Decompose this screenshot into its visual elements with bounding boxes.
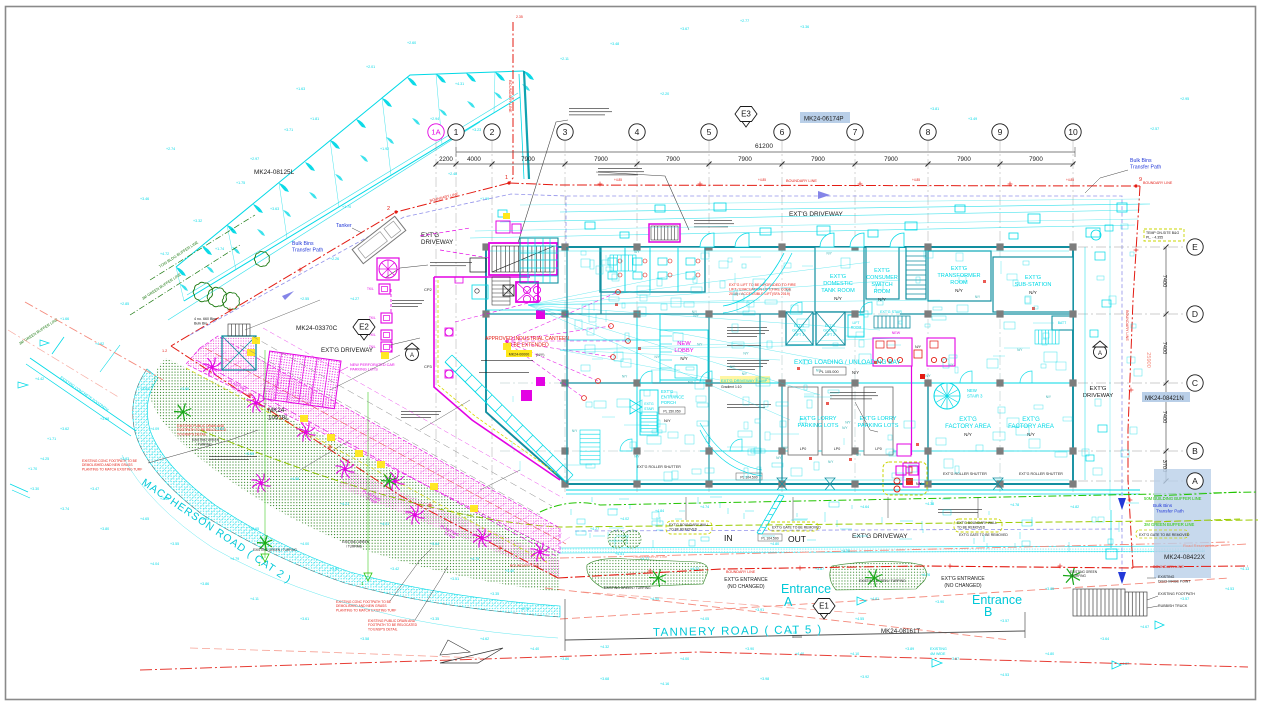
svg-text:+4.74: +4.74 <box>700 505 709 509</box>
svg-text:EXT'G GATE TO BE REMOVED: EXT'G GATE TO BE REMOVED <box>1139 533 1190 537</box>
svg-text:TK/L: TK/L <box>369 316 376 320</box>
svg-text:PLANTING TO MATCH EXISTING TUR: PLANTING TO MATCH EXISTING TURF <box>82 467 142 471</box>
svg-text:NEW: NEW <box>677 341 691 347</box>
svg-text:EXT'G LOADING / UNLOADING BAY: EXT'G LOADING / UNLOADING BAY <box>794 359 901 366</box>
svg-text:N/Y: N/Y <box>915 345 922 349</box>
svg-text:N/Y: N/Y <box>842 426 848 430</box>
svg-text:+3.35: +3.35 <box>430 617 439 621</box>
svg-text:+2.94: +2.94 <box>430 117 439 121</box>
svg-text:2200: 2200 <box>439 156 453 163</box>
svg-text:+3.90: +3.90 <box>935 600 944 604</box>
svg-text:N/Y: N/Y <box>680 356 687 361</box>
svg-text:+4.32: +4.32 <box>600 645 609 649</box>
svg-text:N/Y: N/Y <box>1029 290 1037 295</box>
svg-text:+1.63: +1.63 <box>296 87 305 91</box>
svg-text:LIFT 1: LIFT 1 <box>794 333 804 337</box>
svg-text:+3.92: +3.92 <box>860 675 869 679</box>
svg-text:CONSUMER: CONSUMER <box>866 275 898 281</box>
svg-text:N/Y: N/Y <box>697 343 703 347</box>
svg-text:Road Reserve Line: Road Reserve Line <box>633 554 668 559</box>
svg-text:+4.42: +4.42 <box>35 377 44 381</box>
svg-text:N/Y: N/Y <box>845 420 851 424</box>
svg-text:BATT: BATT <box>1058 321 1066 325</box>
svg-text:+3.40: +3.40 <box>505 569 514 573</box>
svg-text:+1.66: +1.66 <box>60 317 69 321</box>
svg-text:Bulk Bin: Bulk Bin <box>194 322 207 326</box>
svg-text:+3.74: +3.74 <box>60 507 69 511</box>
svg-text:+3.36: +3.36 <box>800 25 809 29</box>
svg-text:+3.48: +3.48 <box>610 42 619 46</box>
svg-text:+4.75: +4.75 <box>470 557 479 561</box>
svg-text:N/Y: N/Y <box>622 375 628 379</box>
svg-text:PARKING LOTS: PARKING LOTS <box>858 423 899 429</box>
svg-text:+4.81: +4.81 <box>870 597 879 601</box>
svg-text:Bulk Bins: Bulk Bins <box>1153 503 1173 508</box>
svg-text:EXT'G: EXT'G <box>1025 275 1041 281</box>
svg-text:/ TURFING: / TURFING <box>1070 574 1086 578</box>
svg-text:+4.13: +4.13 <box>1240 567 1249 571</box>
svg-text:N/Y: N/Y <box>1027 432 1035 437</box>
svg-text:7400: 7400 <box>1161 411 1167 423</box>
svg-text:+4.58: +4.58 <box>290 477 299 481</box>
svg-text:SUB-STATION: SUB-STATION <box>1015 282 1052 288</box>
svg-text:3: 3 <box>563 127 568 137</box>
svg-text:4 no. 660 Bins: 4 no. 660 Bins <box>194 317 217 321</box>
svg-text:10518L: 10518L <box>268 415 289 422</box>
svg-text:EXT'G STAIR: EXT'G STAIR <box>880 310 902 314</box>
svg-text:PL 150.050: PL 150.050 <box>663 410 680 414</box>
svg-text:MK24-08422X: MK24-08422X <box>1164 554 1206 561</box>
svg-text:+2.55: +2.55 <box>300 297 309 301</box>
svg-text:IN: IN <box>724 533 733 543</box>
svg-text:+2.97: +2.97 <box>250 157 259 161</box>
svg-text:EXT'G DRIVEWAY: EXT'G DRIVEWAY <box>789 211 844 218</box>
svg-text:+3.51: +3.51 <box>450 577 459 581</box>
svg-text:LIFT 2: LIFT 2 <box>825 333 835 337</box>
svg-text:+4.51: +4.51 <box>615 552 624 556</box>
svg-text:E: E <box>1192 242 1198 252</box>
svg-text:7900: 7900 <box>594 156 608 163</box>
svg-text:2.35: 2.35 <box>516 15 523 19</box>
svg-text:EXT'G BOUNDARY WALL: EXT'G BOUNDARY WALL <box>957 521 997 525</box>
svg-text:4M WIDE: 4M WIDE <box>930 652 946 656</box>
svg-text:4000: 4000 <box>467 156 481 163</box>
svg-text:+4.10: +4.10 <box>850 652 859 656</box>
svg-text:LP0: LP0 <box>800 447 806 451</box>
svg-text:+3.98: +3.98 <box>760 677 769 681</box>
svg-text:+4.53: +4.53 <box>1225 587 1234 591</box>
svg-text:+2.95: +2.95 <box>1180 97 1189 101</box>
svg-text:TO BE REMOVED: TO BE REMOVED <box>669 528 698 532</box>
svg-text:+3.61: +3.61 <box>300 617 309 621</box>
svg-text:7900: 7900 <box>738 156 752 163</box>
svg-text:7900: 7900 <box>884 156 898 163</box>
svg-text:+2.01: +2.01 <box>366 65 375 69</box>
svg-text:N/Y: N/Y <box>572 429 578 433</box>
svg-text:+4.21: +4.21 <box>340 502 349 506</box>
svg-text:+3.87: +3.87 <box>815 567 824 571</box>
svg-text:B: B <box>984 605 992 619</box>
svg-text:CP3: CP3 <box>424 364 433 369</box>
svg-text:N/Y: N/Y <box>955 288 963 293</box>
svg-text:N/Y: N/Y <box>964 432 972 437</box>
svg-text:EXT'G ENTRANCE: EXT'G ENTRANCE <box>941 576 985 582</box>
svg-text:+3.58: +3.58 <box>360 637 369 641</box>
svg-text:+4.84: +4.84 <box>655 509 664 513</box>
svg-text:N/Y: N/Y <box>827 251 833 255</box>
svg-text:PL. - 4.355: PL. - 4.355 <box>1146 236 1163 240</box>
svg-text:EXT'G: EXT'G <box>1022 417 1040 423</box>
svg-text:MK24-03370C: MK24-03370C <box>296 325 338 332</box>
svg-text:TK/L: TK/L <box>367 287 374 291</box>
svg-text:EXT'G: EXT'G <box>661 389 673 394</box>
svg-text:+3.89: +3.89 <box>905 647 914 651</box>
svg-text:+3.32: +3.32 <box>193 219 202 223</box>
svg-text:4: 4 <box>635 127 640 137</box>
svg-text:+4.82: +4.82 <box>1070 505 1079 509</box>
svg-text:Bulk Bins: Bulk Bins <box>292 241 314 247</box>
svg-text:EXTG: EXTG <box>644 402 654 406</box>
svg-text:Entrance: Entrance <box>972 593 1022 607</box>
svg-text:+3.53: +3.53 <box>200 517 209 521</box>
svg-text:7: 7 <box>853 127 858 137</box>
svg-text:LP0: LP0 <box>834 447 840 451</box>
svg-text:+4.85: +4.85 <box>758 178 766 182</box>
svg-text:+3.55: +3.55 <box>170 542 179 546</box>
svg-text:NEW: NEW <box>967 388 977 393</box>
svg-text:Entrance: Entrance <box>781 582 831 596</box>
svg-text:9: 9 <box>1139 177 1142 183</box>
svg-text:+3.42: +3.42 <box>390 567 399 571</box>
svg-text:+4.02: +4.02 <box>788 631 797 635</box>
svg-text:+4.04: +4.04 <box>150 562 159 566</box>
svg-text:ENTRANCE: ENTRANCE <box>661 395 684 400</box>
svg-text:2: 2 <box>490 127 495 137</box>
svg-text:7400: 7400 <box>1161 275 1167 287</box>
svg-text:+1.70: +1.70 <box>342 205 351 209</box>
svg-text:+3.64: +3.64 <box>1100 637 1109 641</box>
svg-text:E1: E1 <box>819 602 829 611</box>
svg-text:+3.60: +3.60 <box>180 387 189 391</box>
svg-text:EXT'G ROLLER SHUTTER: EXT'G ROLLER SHUTTER <box>943 472 987 476</box>
svg-text:+3.83: +3.83 <box>120 457 129 461</box>
svg-text:+3.71: +3.71 <box>284 128 293 132</box>
svg-text:EXISTING FOOTPATH: EXISTING FOOTPATH <box>1158 592 1195 596</box>
svg-text:N/Y: N/Y <box>634 454 640 458</box>
svg-text:N/Y: N/Y <box>783 446 789 450</box>
svg-text:2: 2 <box>387 206 390 212</box>
svg-text:+4.72: +4.72 <box>160 252 169 256</box>
svg-text:EXT'G ROLLER SHUTTER: EXT'G ROLLER SHUTTER <box>1019 472 1063 476</box>
svg-text:6: 6 <box>780 127 785 137</box>
svg-text:10: 10 <box>1068 127 1078 137</box>
svg-text:+2.85: +2.85 <box>120 302 129 306</box>
svg-text:+4.27: +4.27 <box>350 297 359 301</box>
svg-text:+3.57: +3.57 <box>1180 597 1189 601</box>
svg-text:+2.20: +2.20 <box>660 92 669 96</box>
svg-text:+3.67: +3.67 <box>680 27 689 31</box>
svg-text:STAIR 3: STAIR 3 <box>967 394 983 399</box>
svg-text:+3.46: +3.46 <box>160 497 169 501</box>
svg-text:+4.78: +4.78 <box>1010 503 1019 507</box>
svg-text:RUBBISH TRUCK: RUBBISH TRUCK <box>1158 604 1188 608</box>
svg-text:BOUNDARY LINE: BOUNDARY LINE <box>786 179 817 183</box>
svg-text:+2.77: +2.77 <box>740 19 749 23</box>
svg-text:Tanker: Tanker <box>336 223 352 229</box>
svg-text:A: A <box>410 353 414 359</box>
svg-text:+4.22: +4.22 <box>690 567 699 571</box>
svg-text:EXT'G: EXT'G <box>1090 386 1107 392</box>
svg-text:EXT'G ROLLER SHUTTER: EXT'G ROLLER SHUTTER <box>637 465 681 469</box>
svg-text:+4.62: +4.62 <box>480 637 489 641</box>
svg-text:+3.63: +3.63 <box>215 427 224 431</box>
svg-text:+4.80: +4.80 <box>1045 652 1054 656</box>
svg-text:+4.40: +4.40 <box>795 652 804 656</box>
svg-text:(N/Y): (N/Y) <box>536 353 544 357</box>
svg-text:ROOM: ROOM <box>851 326 862 330</box>
svg-text:TO ENSP'S DETAIL: TO ENSP'S DETAIL <box>177 432 207 436</box>
svg-text:50M BUILDING BUFFER LINE: 50M BUILDING BUFFER LINE <box>1144 496 1202 501</box>
svg-text:+3.46: +3.46 <box>140 197 149 201</box>
svg-text:EXISTING GREEN / TURFING: EXISTING GREEN / TURFING <box>604 586 651 590</box>
svg-text:+4.38: +4.38 <box>925 502 934 506</box>
svg-text:7900: 7900 <box>521 156 535 163</box>
svg-text:7900: 7900 <box>666 156 680 163</box>
svg-text:+2.57: +2.57 <box>1150 127 1159 131</box>
svg-text:+4.31: +4.31 <box>455 82 464 86</box>
svg-text:+4.11: +4.11 <box>250 597 259 601</box>
svg-text:+4.02: +4.02 <box>620 517 629 521</box>
svg-text:EXT'G ENTRANCE: EXT'G ENTRANCE <box>724 577 768 583</box>
svg-text:+4.09: +4.09 <box>150 427 159 431</box>
svg-text:+3.47: +3.47 <box>90 487 99 491</box>
svg-text:+3.55: +3.55 <box>245 452 254 456</box>
svg-text:N/Y: N/Y <box>743 351 749 355</box>
svg-text:CP2: CP2 <box>424 287 433 292</box>
svg-text:N/Y: N/Y <box>834 296 842 301</box>
svg-text:D: D <box>1192 309 1198 319</box>
svg-text:EXT'G GATE TO BE REMOVED: EXT'G GATE TO BE REMOVED <box>959 533 1008 537</box>
svg-text:+4.65: +4.65 <box>250 527 259 531</box>
svg-text:+4.00: +4.00 <box>300 542 309 546</box>
svg-text:25900: 25900 <box>1145 352 1151 368</box>
svg-text:+1.71: +1.71 <box>47 437 56 441</box>
svg-text:7900: 7900 <box>811 156 825 163</box>
svg-text:EXISTING GREEN / TURFING: EXISTING GREEN / TURFING <box>859 579 906 583</box>
svg-text:+4.65: +4.65 <box>140 517 149 521</box>
svg-text:MK24-: MK24- <box>268 407 286 414</box>
svg-text:EXISTING: EXISTING <box>1158 575 1175 579</box>
svg-text:+2.11: +2.11 <box>560 57 569 61</box>
svg-text:+1.99: +1.99 <box>480 197 489 201</box>
svg-text:GOODS: GOODS <box>823 329 837 333</box>
svg-text:A: A <box>1098 351 1102 357</box>
svg-text:EXT'G DRIVEWAY: EXT'G DRIVEWAY <box>321 347 373 354</box>
svg-text:+2.48: +2.48 <box>448 172 457 176</box>
svg-text:(NO CHANGED): (NO CHANGED) <box>944 583 982 589</box>
svg-text:Transfer Path: Transfer Path <box>1156 509 1184 514</box>
svg-text:(NO CHANGED): (NO CHANGED) <box>727 584 765 590</box>
svg-text:3M GREEN BUFFER LINE: 3M GREEN BUFFER LINE <box>1144 522 1194 527</box>
svg-text:GOODS: GOODS <box>792 329 806 333</box>
svg-text:/ TURFING: / TURFING <box>346 545 362 549</box>
svg-text:TO ENSP'S DETAIL: TO ENSP'S DETAIL <box>368 627 398 631</box>
svg-text:NEW PERFORATED CAR: NEW PERFORATED CAR <box>350 363 395 367</box>
svg-text:+4.55: +4.55 <box>855 617 864 621</box>
svg-text:+1.70: +1.70 <box>28 467 37 471</box>
svg-text:APPROVED INDUSTRIAL CANTEEN: APPROVED INDUSTRIAL CANTEEN <box>485 336 569 342</box>
svg-text:LIFT: LIFT <box>853 321 860 325</box>
svg-text:+3.23: +3.23 <box>472 128 481 132</box>
svg-text:5: 5 <box>707 127 712 137</box>
svg-text:61200: 61200 <box>755 143 773 150</box>
svg-text:+3.64: +3.64 <box>430 542 439 546</box>
svg-text:+2.74: +2.74 <box>166 147 175 151</box>
svg-text:FACTORY AREA: FACTORY AREA <box>945 424 991 430</box>
svg-text:DRIVEWAY: DRIVEWAY <box>421 239 453 246</box>
svg-text:PORCH: PORCH <box>661 400 676 405</box>
svg-text:LP0: LP0 <box>875 447 881 451</box>
svg-text:N/Y: N/Y <box>1046 395 1052 399</box>
svg-text:+4.76: +4.76 <box>921 573 930 577</box>
svg-text:Gradient 1:10: Gradient 1:10 <box>721 385 742 389</box>
svg-text:+4.79: +4.79 <box>230 557 239 561</box>
svg-text:N/Y: N/Y <box>828 460 834 464</box>
svg-text:N/Y: N/Y <box>786 289 792 293</box>
svg-text:EXISTING: EXISTING <box>930 647 947 651</box>
svg-text:A: A <box>1192 476 1198 486</box>
svg-text:EXT'G: EXT'G <box>830 274 846 280</box>
svg-text:+4.85: +4.85 <box>614 178 622 182</box>
svg-text:TANK ROOM: TANK ROOM <box>821 288 855 294</box>
svg-text:A: A <box>784 595 793 609</box>
svg-text:+3.91: +3.91 <box>755 608 764 612</box>
svg-text:STAIR: STAIR <box>644 407 654 411</box>
svg-text:MK24-00000: MK24-00000 <box>509 353 530 357</box>
svg-text:+4.16: +4.16 <box>660 682 669 686</box>
svg-text:+4.50: +4.50 <box>841 549 850 553</box>
svg-text:+3.30: +3.30 <box>30 487 39 491</box>
svg-text:+3.49: +3.49 <box>968 117 977 121</box>
svg-text:N/Y: N/Y <box>948 363 954 367</box>
svg-text:N/Y: N/Y <box>975 295 981 299</box>
svg-text:+3.80: +3.80 <box>100 527 109 531</box>
svg-text:+4.67: +4.67 <box>1140 625 1149 629</box>
svg-text:+4.85: +4.85 <box>912 178 920 182</box>
svg-text:PL 104.500: PL 104.500 <box>761 537 778 541</box>
svg-text:MK24-08125L: MK24-08125L <box>254 169 295 176</box>
svg-text:+2.60: +2.60 <box>407 41 416 45</box>
svg-text:+4.05: +4.05 <box>700 617 709 621</box>
svg-text:OUT: OUT <box>788 534 806 544</box>
svg-text:NEW: NEW <box>892 331 901 335</box>
svg-text:+4.25: +4.25 <box>40 457 49 461</box>
svg-text:/ TURFING: / TURFING <box>196 443 212 447</box>
svg-text:7900: 7900 <box>957 156 971 163</box>
svg-text:1A: 1A <box>431 128 440 137</box>
svg-text:+4.80: +4.80 <box>770 542 779 546</box>
svg-text:EXISTING GREEN: EXISTING GREEN <box>192 438 220 442</box>
svg-text:Transfer Path: Transfer Path <box>292 248 323 254</box>
svg-text:E3: E3 <box>741 110 751 119</box>
svg-text:EXT'G: EXT'G <box>959 417 977 423</box>
svg-text:+3.86: +3.86 <box>200 582 209 586</box>
svg-text:BOUNDARY LINE: BOUNDARY LINE <box>726 570 756 574</box>
svg-text:7400: 7400 <box>1161 342 1167 354</box>
svg-text:EXT'G: EXT'G <box>874 268 890 274</box>
svg-text:+3.68: +3.68 <box>600 677 609 681</box>
svg-text:MK24-08421N: MK24-08421N <box>1145 396 1184 402</box>
svg-text:N/Y: N/Y <box>692 310 698 314</box>
svg-text:Bulk Bins: Bulk Bins <box>1130 158 1152 164</box>
svg-text:+3.63: +3.63 <box>270 207 279 211</box>
svg-text:C: C <box>1192 378 1198 388</box>
svg-text:1.2: 1.2 <box>162 349 167 353</box>
svg-text:9: 9 <box>998 127 1003 137</box>
svg-text:+1.74: +1.74 <box>215 247 224 251</box>
svg-text:MK24-06174P: MK24-06174P <box>804 116 844 123</box>
svg-text:N/Y: N/Y <box>688 381 694 385</box>
svg-text:8: 8 <box>926 127 931 137</box>
svg-text:PL 104.500: PL 104.500 <box>740 476 757 480</box>
svg-text:+3.90: +3.90 <box>745 647 754 651</box>
svg-text:N/Y: N/Y <box>776 456 782 460</box>
svg-text:+3.81: +3.81 <box>930 107 939 111</box>
svg-text:+3.75: +3.75 <box>520 607 529 611</box>
svg-text:+3.92: +3.92 <box>330 567 339 571</box>
svg-text:+3.62: +3.62 <box>60 427 69 431</box>
svg-text:BOUNDARY LINE: BOUNDARY LINE <box>1125 310 1129 341</box>
svg-text:+3.35: +3.35 <box>490 592 499 596</box>
svg-text:N/Y: N/Y <box>925 374 931 378</box>
svg-text:N/Y: N/Y <box>816 368 822 372</box>
svg-text:DRIVEWAY: DRIVEWAY <box>1083 393 1113 399</box>
svg-text:EXT'G GATE TO BE REMOVED: EXT'G GATE TO BE REMOVED <box>772 526 821 530</box>
svg-text:+4.64: +4.64 <box>860 505 869 509</box>
svg-text:+3.85: +3.85 <box>1045 587 1054 591</box>
svg-text:+4.90: +4.90 <box>650 597 659 601</box>
svg-text:+3.57: +3.57 <box>1000 619 1009 623</box>
svg-text:+1.92: +1.92 <box>380 147 389 151</box>
svg-text:+1.75: +1.75 <box>236 181 245 185</box>
svg-text:PARKING LOTS: PARKING LOTS <box>798 423 839 429</box>
svg-text:PLANTING TO MATCH EXISTING TUR: PLANTING TO MATCH EXISTING TURF <box>336 608 396 612</box>
svg-text:N/Y: N/Y <box>852 370 859 375</box>
svg-text:DISCHARGE POINT: DISCHARGE POINT <box>1158 580 1191 584</box>
svg-text:EXISTING GREEN / TURFING: EXISTING GREEN / TURFING <box>253 548 297 552</box>
svg-text:+1.81: +1.81 <box>310 117 319 121</box>
svg-text:BOUNDARY LINE: BOUNDARY LINE <box>508 80 513 113</box>
svg-text:PL 105.000: PL 105.000 <box>819 370 838 374</box>
svg-text:+4.00: +4.00 <box>680 657 689 661</box>
svg-text:EXT'G: EXT'G <box>951 266 967 272</box>
svg-text:+3.68: +3.68 <box>100 417 109 421</box>
svg-text:N/Y: N/Y <box>916 482 922 486</box>
svg-text:BOUNDARY LINE: BOUNDARY LINE <box>1143 181 1173 185</box>
svg-text:7900: 7900 <box>1029 156 1043 163</box>
svg-text:B: B <box>1192 446 1198 456</box>
svg-text:N/Y: N/Y <box>856 453 862 457</box>
svg-text:+4.27: +4.27 <box>590 527 599 531</box>
svg-text:N/Y: N/Y <box>664 418 671 423</box>
svg-text:EXISTING GREEN: EXISTING GREEN <box>342 540 370 544</box>
svg-text:TEMP ON-SITE B&G: TEMP ON-SITE B&G <box>1146 231 1179 235</box>
svg-text:+3.77: +3.77 <box>640 557 649 561</box>
svg-text:N/Y: N/Y <box>1017 348 1023 352</box>
svg-text:1: 1 <box>454 127 459 137</box>
svg-text:+4.53: +4.53 <box>1000 673 1009 677</box>
svg-text:Transfer Path: Transfer Path <box>1130 165 1161 171</box>
